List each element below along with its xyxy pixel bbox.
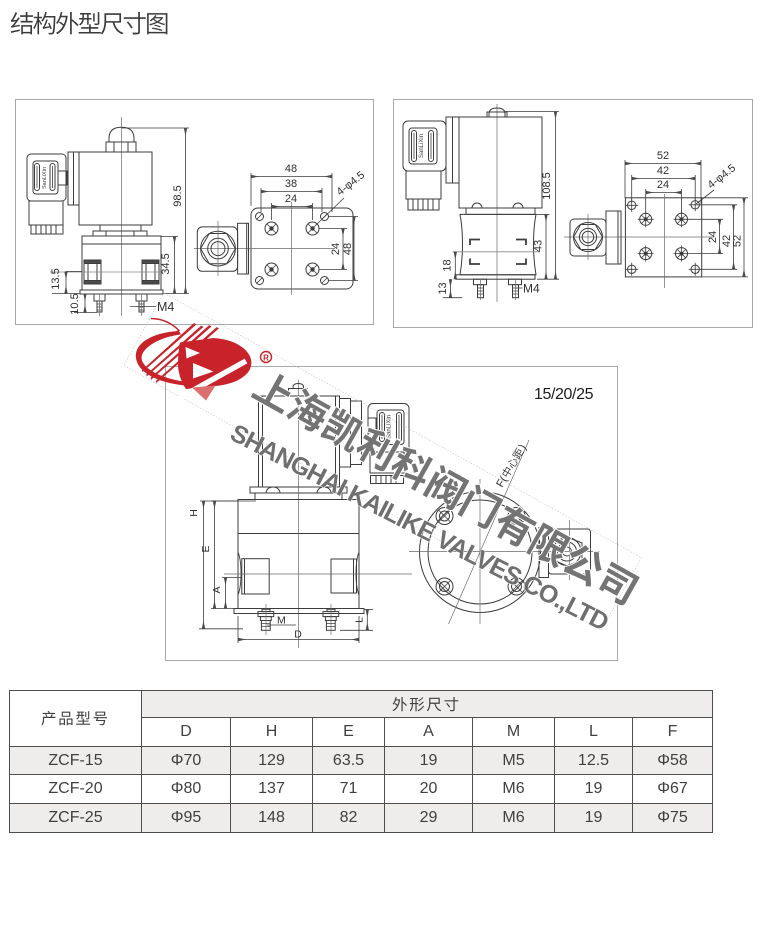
svg-text:48: 48 xyxy=(285,163,297,175)
svg-text:SanLiXin: SanLiXin xyxy=(42,167,48,189)
svg-text:D: D xyxy=(294,629,302,641)
svg-text:E: E xyxy=(200,545,212,552)
svg-text:H: H xyxy=(188,509,200,517)
svg-text:43: 43 xyxy=(533,240,545,252)
svg-text:R: R xyxy=(263,354,269,363)
svg-text:42: 42 xyxy=(657,165,669,177)
svg-text:M4: M4 xyxy=(523,282,540,296)
svg-text:48: 48 xyxy=(342,243,354,255)
svg-text:M: M xyxy=(277,615,286,627)
svg-text:M4: M4 xyxy=(157,300,174,314)
svg-text:24: 24 xyxy=(657,179,669,191)
svg-text:F(: F( xyxy=(494,474,510,489)
svg-text:10.5: 10.5 xyxy=(69,293,81,314)
svg-text:4-φ4.5: 4-φ4.5 xyxy=(334,169,367,198)
svg-text:52: 52 xyxy=(657,150,669,162)
svg-text:108.5: 108.5 xyxy=(541,172,553,200)
svg-text:L: L xyxy=(354,617,366,623)
svg-text:13.5: 13.5 xyxy=(50,268,62,289)
svg-text:34.5: 34.5 xyxy=(160,253,172,274)
svg-text:18: 18 xyxy=(442,259,454,271)
svg-text:4-φ4.5: 4-φ4.5 xyxy=(705,162,738,191)
svg-text:98.5: 98.5 xyxy=(172,185,184,206)
svg-text:SanLiXin: SanLiXin xyxy=(419,134,425,158)
svg-text:15/20/25: 15/20/25 xyxy=(534,386,594,403)
svg-text:24: 24 xyxy=(707,231,719,243)
svg-text:52: 52 xyxy=(732,235,744,247)
svg-text:24: 24 xyxy=(330,243,342,255)
svg-text:38: 38 xyxy=(285,178,297,190)
svg-text:SHANGHAI KAILIKE VALVES CO.,LT: SHANGHAI KAILIKE VALVES CO.,LTD xyxy=(226,419,613,637)
svg-text:13: 13 xyxy=(437,282,449,294)
svg-text:24: 24 xyxy=(285,193,297,205)
svg-text:A: A xyxy=(211,586,223,593)
svg-text:SanLiXin: SanLiXin xyxy=(387,415,393,439)
